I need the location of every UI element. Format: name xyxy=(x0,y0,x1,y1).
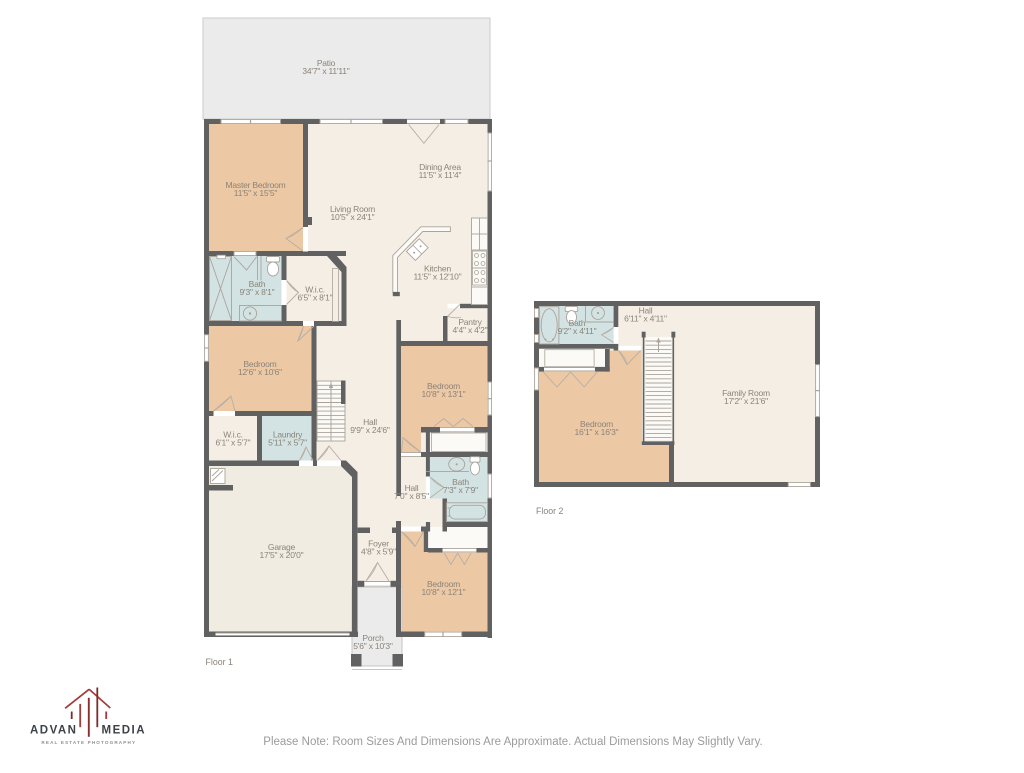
svg-text:9'3" x 8'1": 9'3" x 8'1" xyxy=(240,287,275,297)
svg-text:9'2" x 4'11": 9'2" x 4'11" xyxy=(558,326,597,336)
svg-text:17'2" x 21'6": 17'2" x 21'6" xyxy=(724,396,768,406)
svg-text:10'5" x 24'1": 10'5" x 24'1" xyxy=(330,212,374,222)
svg-text:4'8" x 5'9": 4'8" x 5'9" xyxy=(361,547,396,557)
svg-text:5'11" x 5'7": 5'11" x 5'7" xyxy=(268,438,307,448)
svg-text:7'0" x 8'5": 7'0" x 8'5" xyxy=(394,491,429,501)
svg-text:11'5" x 15'5": 11'5" x 15'5" xyxy=(234,188,278,198)
svg-text:12'6" x 10'6": 12'6" x 10'6" xyxy=(238,367,282,377)
svg-text:REAL ESTATE PHOTOGRAPHY: REAL ESTATE PHOTOGRAPHY xyxy=(41,740,136,745)
svg-text:10'8" x 12'1": 10'8" x 12'1" xyxy=(421,587,465,597)
svg-text:ADVAN: ADVAN xyxy=(30,724,78,736)
svg-text:34'7" x 11'11": 34'7" x 11'11" xyxy=(302,66,349,76)
svg-text:4'4" x 4'2": 4'4" x 4'2" xyxy=(453,325,488,335)
svg-text:17'5" x 20'0": 17'5" x 20'0" xyxy=(259,550,303,560)
svg-text:Floor 2: Floor 2 xyxy=(536,506,563,516)
svg-text:6'5" x 8'1": 6'5" x 8'1" xyxy=(298,293,333,303)
svg-text:11'5" x 11'4": 11'5" x 11'4" xyxy=(419,170,462,180)
svg-text:6'1" x 5'7": 6'1" x 5'7" xyxy=(216,438,251,448)
svg-text:Floor 1: Floor 1 xyxy=(206,657,233,667)
svg-text:5'6" x 10'3": 5'6" x 10'3" xyxy=(353,641,393,651)
svg-text:16'1" x 16'3": 16'1" x 16'3" xyxy=(574,427,618,437)
svg-text:9'9" x 24'6": 9'9" x 24'6" xyxy=(350,425,390,435)
svg-text:Please Note: Room Sizes And Di: Please Note: Room Sizes And Dimensions A… xyxy=(263,736,762,748)
svg-text:6'11" x 4'11": 6'11" x 4'11" xyxy=(624,314,667,324)
svg-text:7'3" x 7'9": 7'3" x 7'9" xyxy=(443,485,478,495)
svg-text:MEDIA: MEDIA xyxy=(102,724,147,736)
svg-text:10'8" x 13'1": 10'8" x 13'1" xyxy=(421,389,465,399)
svg-text:11'5" x 12'10": 11'5" x 12'10" xyxy=(414,272,462,282)
